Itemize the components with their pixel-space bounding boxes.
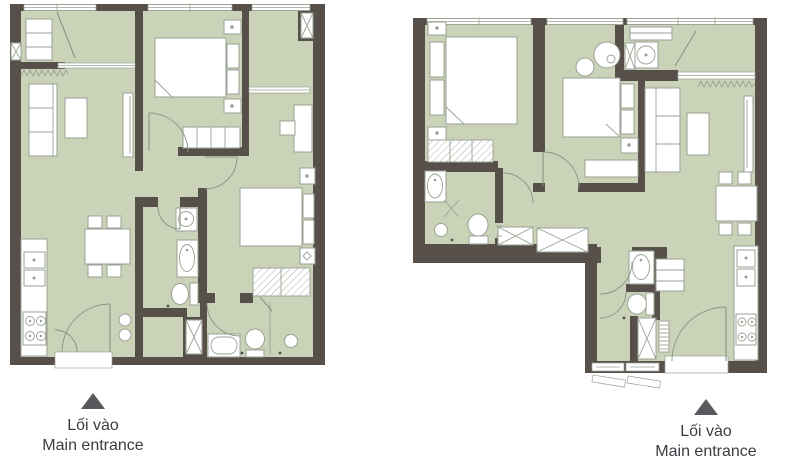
bathtub <box>208 334 240 357</box>
wardrobe-a <box>428 140 493 162</box>
bench <box>585 160 638 177</box>
shoe-cabinet <box>656 259 684 291</box>
floorplan-canvas: Lối vào Main entrance Lối vào Main entra… <box>0 0 800 457</box>
bathroomA-sink <box>425 171 446 202</box>
hall-closet-2 <box>537 228 588 252</box>
up-triangle-icon <box>81 393 105 409</box>
toilet-1 <box>172 283 199 305</box>
shower-drain <box>285 335 298 348</box>
coffee-table <box>65 98 87 138</box>
up-triangle-icon <box>694 399 718 415</box>
drying-rack <box>659 321 669 352</box>
duct-shaft <box>301 13 313 38</box>
entrance-threshold <box>55 352 112 368</box>
wardrobe-2 <box>253 268 310 296</box>
ac-unit <box>11 43 21 60</box>
bathroomB-sink <box>629 251 654 284</box>
entrance-label-left: Lối vào Main entrance <box>18 393 168 456</box>
toilet-a <box>468 214 488 244</box>
armchair-round <box>594 42 620 68</box>
entrance-label-english: Main entrance <box>18 437 168 455</box>
sofa <box>645 88 680 172</box>
desk-chair <box>280 121 295 135</box>
tv-console <box>744 96 753 172</box>
entrance-label-right: Lối vào Main entrance <box>631 399 781 457</box>
wardrobe-1 <box>183 127 240 148</box>
washing-machine <box>635 42 658 68</box>
tv-console <box>123 93 133 157</box>
side-table-round <box>576 58 594 76</box>
desk <box>294 105 312 152</box>
duct-box <box>625 43 635 69</box>
toilet-2 <box>246 329 265 357</box>
floor-plan-right <box>413 18 767 389</box>
stool <box>119 329 131 341</box>
entrance-threshold <box>665 356 728 373</box>
duct-closet <box>638 318 656 359</box>
sofa <box>29 84 57 156</box>
entrance-label-vietnamese: Lối vào <box>631 423 781 441</box>
floor-plans-drawing <box>0 0 800 457</box>
washing-machine <box>176 208 197 231</box>
shower-drain <box>435 224 448 237</box>
entrance-label-english: Main entrance <box>631 443 781 457</box>
balcony-cabinet <box>630 27 672 40</box>
balcony-cabinet <box>26 19 52 60</box>
kitchen-counter <box>734 246 758 360</box>
toilet-b <box>628 293 655 315</box>
kitchen-counter <box>21 239 47 356</box>
bathroom1-sink <box>177 240 198 277</box>
hall-closet-1 <box>498 227 533 245</box>
floor-plan-left <box>10 4 325 369</box>
sliding-door <box>592 363 661 388</box>
duct-closet <box>186 320 202 354</box>
entrance-label-vietnamese: Lối vào <box>18 417 168 435</box>
coffee-table <box>687 113 709 155</box>
stool <box>119 314 131 326</box>
